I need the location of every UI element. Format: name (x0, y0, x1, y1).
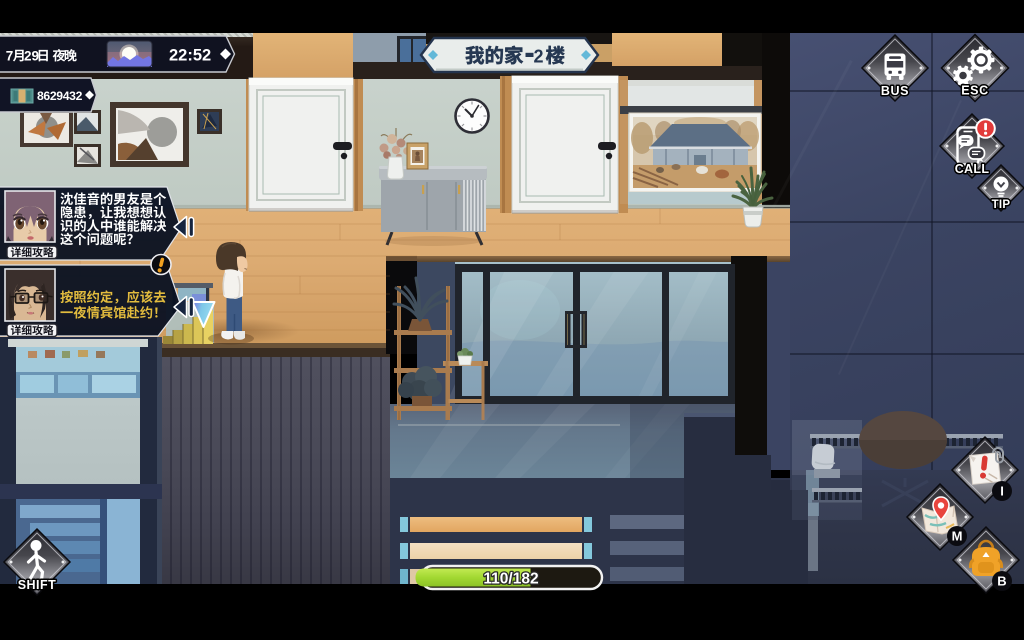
svg-text:22:52: 22:52 (169, 47, 211, 65)
svg-text:2: 2 (534, 47, 544, 67)
svg-text:TIP: TIP (992, 199, 1011, 211)
svg-text:29: 29 (24, 49, 39, 64)
svg-text:110/182: 110/182 (483, 571, 538, 588)
svg-text:ESC: ESC (961, 84, 989, 98)
svg-text:SHIFT: SHIFT (18, 578, 57, 592)
svg-text:8629432: 8629432 (37, 89, 83, 103)
svg-text:BUS: BUS (881, 84, 909, 98)
svg-text:CALL: CALL (955, 162, 990, 176)
svg-text:M: M (952, 529, 963, 544)
svg-text:7: 7 (6, 49, 14, 64)
svg-text:B: B (997, 574, 1006, 589)
svg-text:I: I (1000, 484, 1004, 499)
